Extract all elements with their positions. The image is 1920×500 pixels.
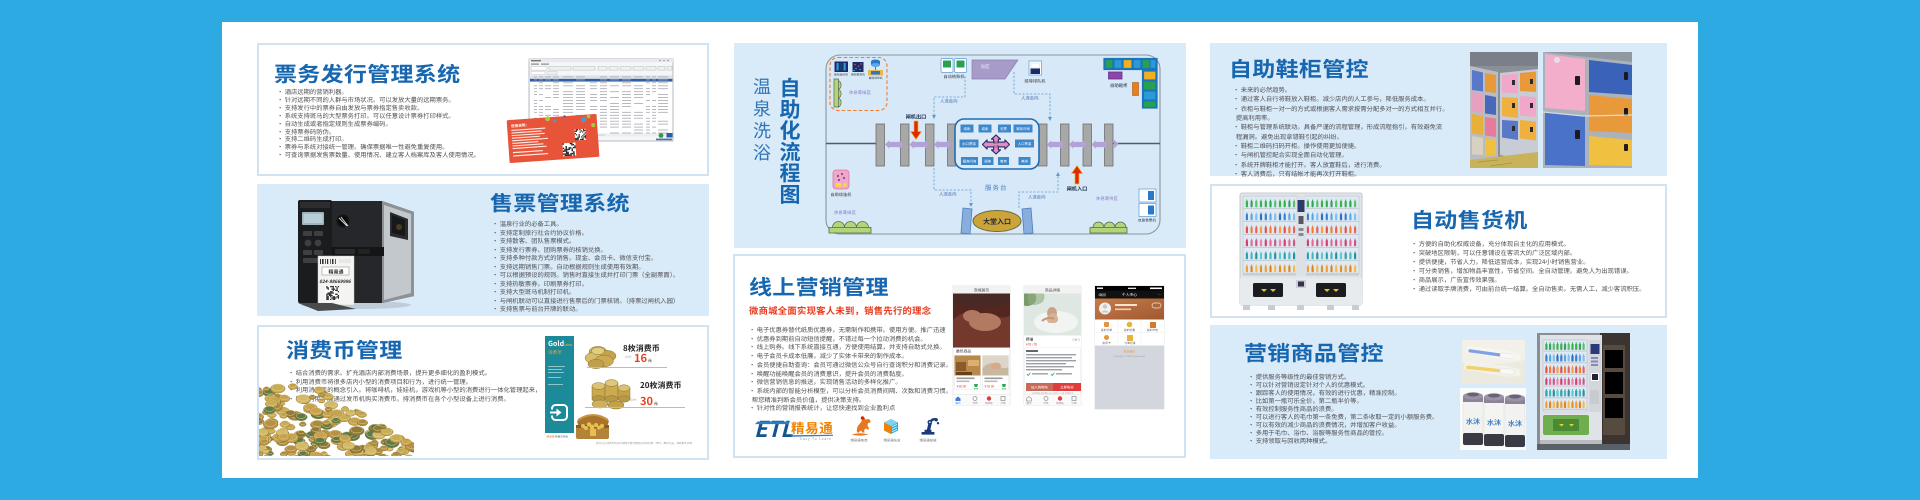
svg-text:无票: 无票: [1000, 126, 1007, 131]
svg-text:闸机入口: 闸机入口: [1067, 186, 1088, 193]
svg-text:服务台: 服务台: [985, 182, 1008, 192]
svg-text:Copyright © 2008-2018 www.yt: Copyright © 2008-2018 www.yt: [1114, 354, 1146, 358]
svg-text:入口票道: 入口票道: [1018, 141, 1032, 146]
svg-text:消费币: 消费币: [548, 350, 562, 356]
svg-text:订单: 订单: [1071, 401, 1077, 405]
svg-text:休息等候区: 休息等候区: [849, 90, 872, 96]
svg-text:精易通: 精易通: [547, 435, 555, 439]
svg-text:商城首页: 商城首页: [974, 288, 989, 294]
svg-text:自动结账机: 自动结账机: [944, 74, 966, 80]
svg-text:024-88669996: 024-88669996: [319, 279, 352, 285]
svg-text:奥易天系统: 奥易天系统: [555, 435, 568, 439]
svg-text:自动出币机: 自动出币机: [834, 73, 848, 77]
svg-text:人流走向: 人流走向: [1028, 195, 1046, 201]
svg-text:首页: 首页: [955, 401, 961, 405]
svg-text:精易通电商: 精易通电商: [851, 438, 869, 443]
svg-text:出口票道: 出口票道: [962, 141, 976, 146]
svg-text:水沐: 水沐: [1487, 418, 1501, 428]
svg-text:水沐: 水沐: [1508, 419, 1522, 429]
svg-text:大堂入口: 大堂入口: [983, 217, 1011, 227]
svg-text:我的优惠: 我的优惠: [1124, 328, 1135, 332]
svg-text:¥38.00: ¥38.00: [957, 384, 967, 389]
svg-text:最热商品: 最热商品: [956, 349, 971, 355]
svg-text:加入购物车: 加入购物车: [1031, 385, 1049, 390]
svg-text:水沐: 水沐: [1466, 417, 1480, 427]
svg-text:闸机出口: 闸机出口: [906, 114, 927, 121]
svg-text:结账: 结账: [982, 126, 989, 131]
svg-text:人流走向: 人流走向: [1021, 96, 1039, 102]
svg-text:精易通: 精易通: [791, 417, 833, 437]
svg-text:结账: 结账: [964, 126, 971, 131]
svg-text:售卖: 售卖: [1000, 158, 1007, 163]
svg-text:服务问询: 服务问询: [963, 158, 977, 163]
svg-text:个人中心: 个人中心: [1122, 292, 1137, 298]
svg-text:会员卡: 会员卡: [1102, 341, 1111, 345]
svg-text:商品详情: 商品详情: [1045, 288, 1060, 294]
svg-text:人员: 人员: [993, 144, 999, 148]
svg-text:使用说明：: 使用说明：: [511, 122, 529, 129]
svg-text:Coins: Coins: [563, 342, 573, 347]
svg-text:我的订单: 我的订单: [1101, 328, 1112, 332]
svg-text:¥78.00: ¥78.00: [985, 384, 995, 389]
svg-text:人流走向: 人流走向: [940, 99, 958, 105]
svg-text:疏导排队机: 疏导排队机: [1025, 79, 1047, 85]
svg-text:人流走向: 人流走向: [939, 192, 957, 198]
svg-text:订单记录: 订单记录: [1124, 341, 1135, 345]
svg-text:退换: 退换: [984, 158, 991, 163]
svg-text:自助领带机: 自助领带机: [869, 76, 883, 80]
svg-text:立即购买: 立即购买: [1060, 385, 1074, 390]
svg-text:休息等待区: 休息等待区: [1096, 196, 1119, 202]
svg-text:自动换货机: 自动换货机: [851, 73, 865, 77]
svg-text:首页: 首页: [1026, 401, 1032, 405]
svg-text:ETL: ETL: [754, 415, 793, 444]
svg-text:精易通信息: 精易通信息: [884, 438, 902, 443]
svg-text:我的卡包: 我的卡包: [1147, 328, 1158, 332]
svg-text:购物车: 购物车: [1056, 401, 1064, 405]
svg-text:休息等候区: 休息等候区: [834, 210, 857, 216]
svg-text:订单: 订单: [1000, 401, 1006, 405]
svg-text:¥78 / 包: ¥78 / 包: [1026, 342, 1038, 347]
svg-text:购物车: 购物车: [985, 401, 993, 405]
svg-text:浴区: 浴区: [980, 64, 990, 70]
svg-text:精易通智能: 精易通智能: [920, 438, 938, 443]
svg-text:精易通: 精易通: [328, 269, 343, 276]
svg-text:分类: 分类: [1043, 401, 1049, 405]
svg-text:服务问询: 服务问询: [1016, 126, 1030, 131]
svg-text:分类: 分类: [972, 401, 978, 405]
svg-text:自助鞋柜: 自助鞋柜: [1110, 83, 1128, 89]
svg-text:自助续挂机: 自助续挂机: [831, 192, 853, 198]
svg-text:‹返回: ‹返回: [1098, 292, 1106, 297]
svg-text:联系我们: 联系我们: [1124, 350, 1135, 354]
svg-text:Gold: Gold: [548, 339, 564, 349]
svg-text:已售31: 已售31: [1072, 338, 1081, 342]
svg-text:自助售票机: 自助售票机: [1138, 218, 1156, 224]
svg-text:Easy To Learn: Easy To Learn: [800, 437, 832, 442]
svg-text:美淋: 美淋: [1021, 158, 1028, 163]
